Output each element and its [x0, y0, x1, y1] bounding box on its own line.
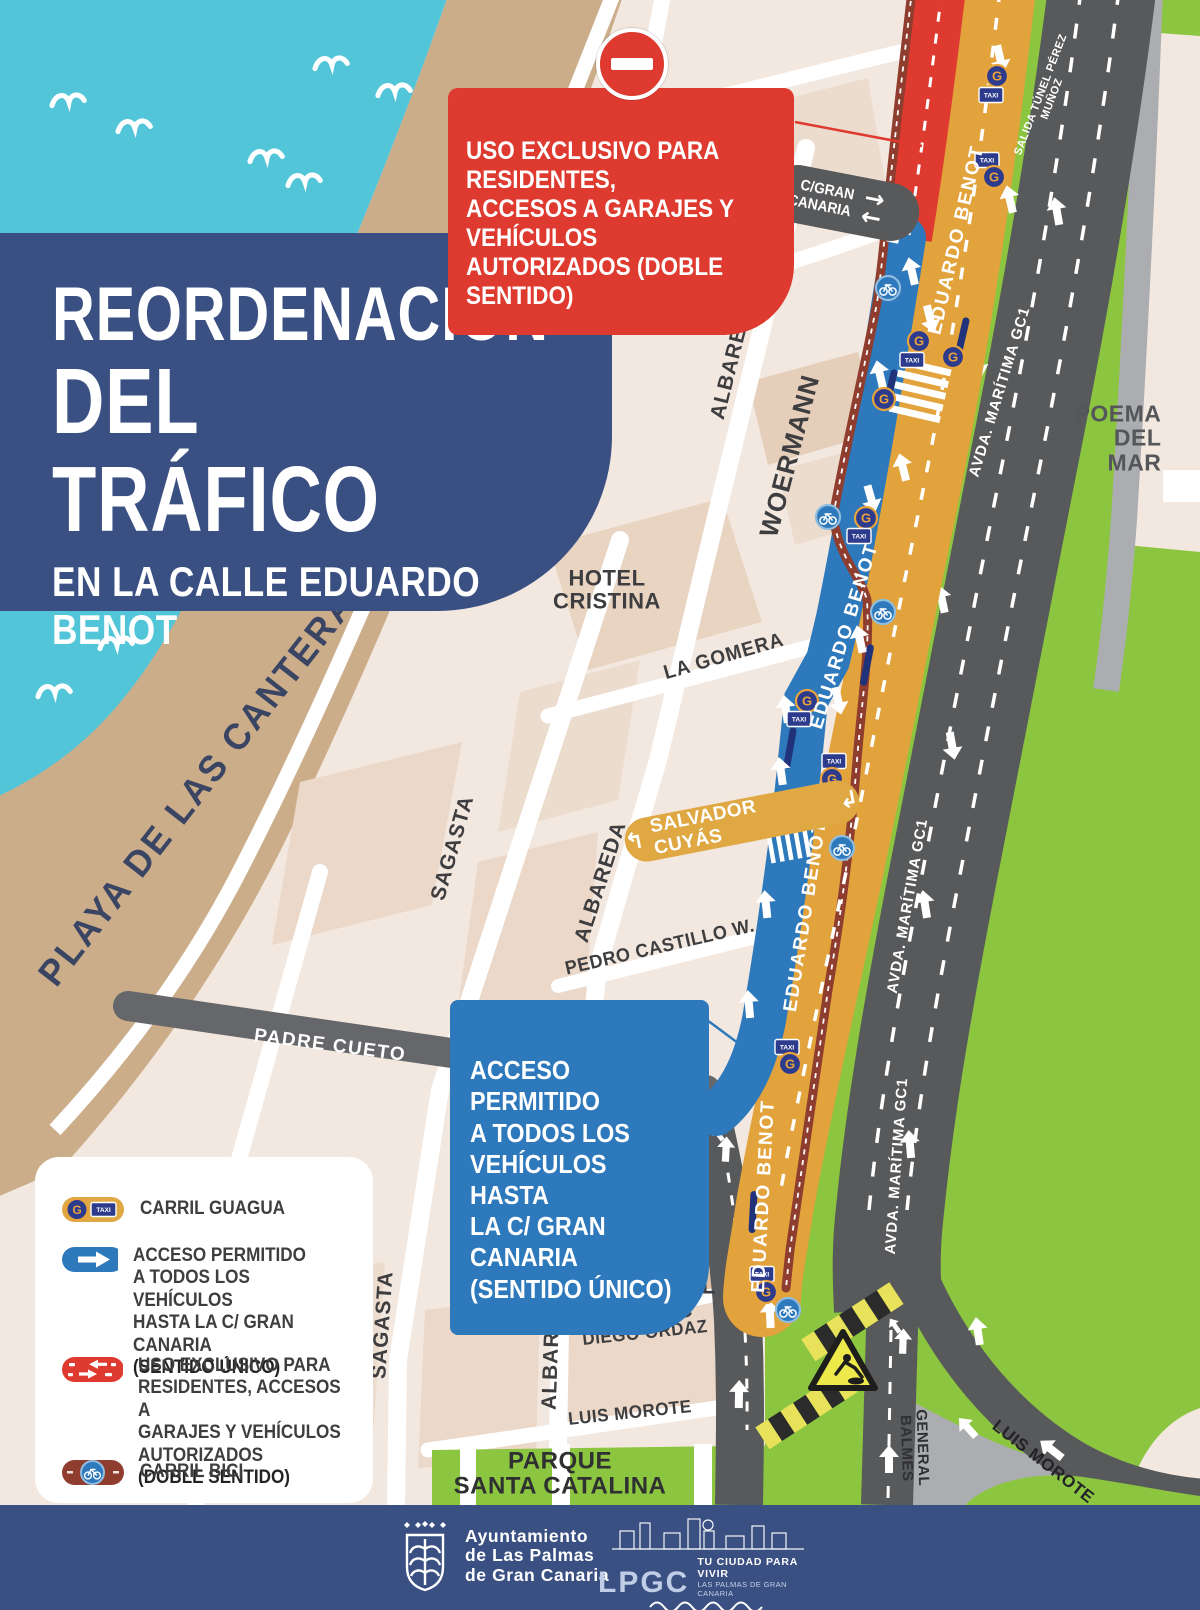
legend-item-guagua: G TAXI CARRIL GUAGUA	[61, 1195, 301, 1224]
lpgc-tagline: TU CIUDAD PARA VIVIR	[697, 1556, 818, 1580]
gran-canaria-sign-text: C/GRAN CANARIA	[787, 176, 856, 221]
traffic-poster: G TAXI	[0, 0, 1200, 1610]
lpgc-logo: LPGC TU CIUDAD PARA VIVIR LAS PALMAS DE …	[598, 1511, 818, 1610]
ayuntamiento-logo: Ayuntamiento de Las Palmas de Gran Canar…	[398, 1519, 609, 1593]
title-line-2: DEL TRÁFICO	[52, 353, 489, 548]
lpgc-skyline-icon	[608, 1511, 808, 1551]
lpgc-wordmark: LPGC	[598, 1568, 689, 1598]
label-poema-del-mar: POEMA DEL MAR	[1075, 401, 1162, 474]
lpgc-tagline-sub: LAS PALMAS DE GRAN CANARIA	[697, 1580, 818, 1598]
title-line-3: EN LA CALLE EDUARDO BENOT	[52, 558, 522, 654]
legend-item-bici: CARRIL BICI	[61, 1457, 255, 1487]
bus-taxi-lane-icon: G TAXI	[61, 1195, 125, 1224]
red-callout: USO EXCLUSIVO PARA RESIDENTES, ACCESOS A…	[448, 88, 794, 335]
bike-lane-legend-icon	[61, 1457, 125, 1487]
lpgc-wave-icon	[648, 1599, 768, 1610]
arrow-left-icon: ←	[859, 207, 882, 230]
label-hotel-cristina: HOTEL CRISTINA	[553, 567, 661, 614]
legend-label-bici: CARRIL BICI	[140, 1461, 243, 1483]
label-parque-santa-catalina: PARQUE SANTA CATALINA	[454, 1449, 667, 1500]
blue-lane-icon	[61, 1245, 118, 1274]
no-entry-icon	[596, 28, 668, 100]
red-lane-icon	[61, 1355, 123, 1384]
svg-text:G: G	[72, 1203, 81, 1217]
legend-label-residents: USO EXCLUSIVO PARA RESIDENTES, ACCESOS A…	[138, 1355, 350, 1467]
legend-panel: G TAXI CARRIL GUAGUA ACCESO PERMITIDO A …	[35, 1157, 373, 1503]
svg-text:TAXI: TAXI	[96, 1207, 111, 1214]
legend-label-access: ACCESO PERMITIDO A TODOS LOS VEHÍCULOS H…	[133, 1245, 349, 1357]
blue-callout-text: ACCESO PERMITIDO A TODOS LOS VEHÍCULOS H…	[470, 1055, 676, 1305]
title-line-1: REORDENACIÓN	[52, 277, 489, 353]
ayuntamiento-text: Ayuntamiento de Las Palmas de Gran Canar…	[465, 1527, 609, 1585]
turn-left-icon: ↰	[623, 827, 647, 856]
footer-bar: Ayuntamiento de Las Palmas de Gran Canar…	[0, 1505, 1200, 1610]
red-callout-text: USO EXCLUSIVO PARA RESIDENTES, ACCESOS A…	[466, 137, 749, 311]
ayuntamiento-shield-icon	[398, 1519, 452, 1593]
label-general-balmes: GENERAL BALMES	[897, 1409, 931, 1487]
blue-callout: ACCESO PERMITIDO A TODOS LOS VEHÍCULOS H…	[450, 1000, 709, 1335]
legend-label-guagua: CARRIL GUAGUA	[140, 1198, 285, 1220]
